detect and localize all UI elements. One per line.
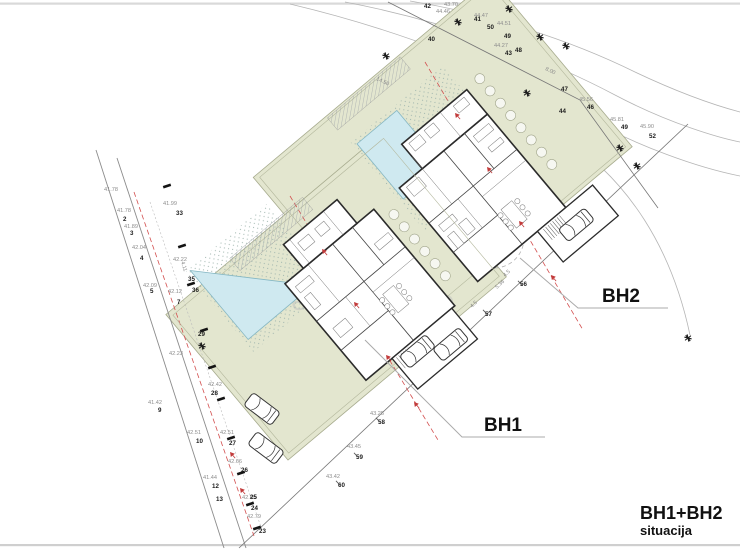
point-number-label: 2 (123, 216, 127, 223)
elevation-label: 41.78 (117, 208, 131, 214)
point-number-label: 43 (505, 50, 512, 57)
tree-icon (455, 19, 461, 25)
point-number-label: 3 (130, 230, 134, 237)
title-block: BH1+BH2 situacija (640, 503, 723, 538)
point-number-label: 9 (158, 407, 162, 414)
elevation-label: 41.78 (104, 187, 118, 193)
tree-icon (685, 335, 691, 341)
elevation-label: 42.51 (220, 430, 234, 436)
elevation-label: 42.79 (247, 514, 261, 520)
benchmark-icon (549, 273, 558, 282)
point-number-label: 50 (487, 24, 494, 31)
survey-mark-icon (163, 184, 171, 189)
tree-icon (634, 163, 640, 169)
point-number-label: 57 (485, 311, 492, 318)
point-number-label: 28 (211, 390, 218, 397)
point-number-label: 59 (356, 454, 363, 461)
point-number-label: 4 (140, 255, 144, 262)
point-number-label: 49 (504, 33, 511, 40)
point-number-label: 27 (229, 440, 236, 447)
point-number-label: 5 (150, 288, 154, 295)
elevation-label: 42.12 (168, 289, 182, 295)
point-number-label: 40 (428, 36, 435, 43)
point-number-label: 41 (474, 16, 481, 23)
tree-icon (506, 6, 512, 12)
tree-icon (199, 343, 205, 349)
point-number-label: 48 (515, 47, 522, 54)
elevation-label: 45.56 (579, 97, 593, 103)
point-number-label: 47 (561, 86, 568, 93)
benchmark-icon (412, 400, 421, 409)
bottom-rule (0, 544, 740, 546)
point-number-label: 58 (378, 419, 385, 426)
elevation-label: 43.25 (370, 411, 384, 417)
dimension-label: 4.5 (502, 269, 512, 279)
survey-mark-icon (217, 397, 225, 402)
survey-mark-icon (178, 244, 186, 249)
elevation-label: 42.42 (208, 382, 222, 388)
elevation-label: 41.42 (148, 400, 162, 406)
elevation-label: 43.42 (326, 474, 340, 480)
point-number-label: 23 (259, 528, 266, 535)
elevation-label: 45.81 (610, 117, 624, 123)
bh1-label: BH1 (484, 415, 522, 436)
point-number-label: 36 (192, 287, 199, 294)
point-number-label: 25 (250, 494, 257, 501)
tree-icon (537, 34, 543, 40)
drawing-title: BH1+BH2 (640, 503, 723, 523)
point-number-label: 13 (216, 496, 223, 503)
point-number-label: 7 (177, 299, 181, 306)
point-number-label: 33 (176, 210, 183, 217)
point-number-label: 46 (587, 104, 594, 111)
elevation-label: 44.46 (436, 9, 450, 15)
point-number-label: 42 (424, 3, 431, 10)
elevation-label: 41.99 (163, 201, 177, 207)
tree-icon (383, 53, 389, 59)
point-number-label: 24 (251, 505, 258, 512)
elevation-label: 42.51 (187, 430, 201, 436)
point-number-label: 49 (621, 124, 628, 131)
elevation-label: 42.23 (169, 351, 183, 357)
site-plan-page: nekretnine (0, 0, 740, 550)
elevation-label: 43.45 (347, 444, 361, 450)
elevation-label: 44.27 (494, 43, 508, 49)
point-number-label: 60 (338, 482, 345, 489)
elevation-label: 43.70 (444, 2, 458, 8)
point-number-label: 10 (196, 438, 203, 445)
bh2-label: BH2 (602, 286, 640, 307)
elevation-label: 45.90 (640, 124, 654, 130)
top-rule (0, 3, 740, 5)
point-number-label: 12 (212, 483, 219, 490)
tree-icon (617, 145, 623, 151)
point-number-label: 44 (559, 108, 566, 115)
elevation-label: 41.44 (203, 475, 217, 481)
elevation-label: 42.66 (228, 459, 242, 465)
site-plan-canvas: nekretnine (0, 0, 740, 550)
elevation-label: 42.04 (132, 245, 146, 251)
tree-icon (524, 90, 530, 96)
drawing-subtitle: situacija (640, 523, 693, 538)
tree-icon (563, 43, 569, 49)
point-number-label: 52 (649, 133, 656, 140)
elevation-label: 44.51 (497, 21, 511, 27)
